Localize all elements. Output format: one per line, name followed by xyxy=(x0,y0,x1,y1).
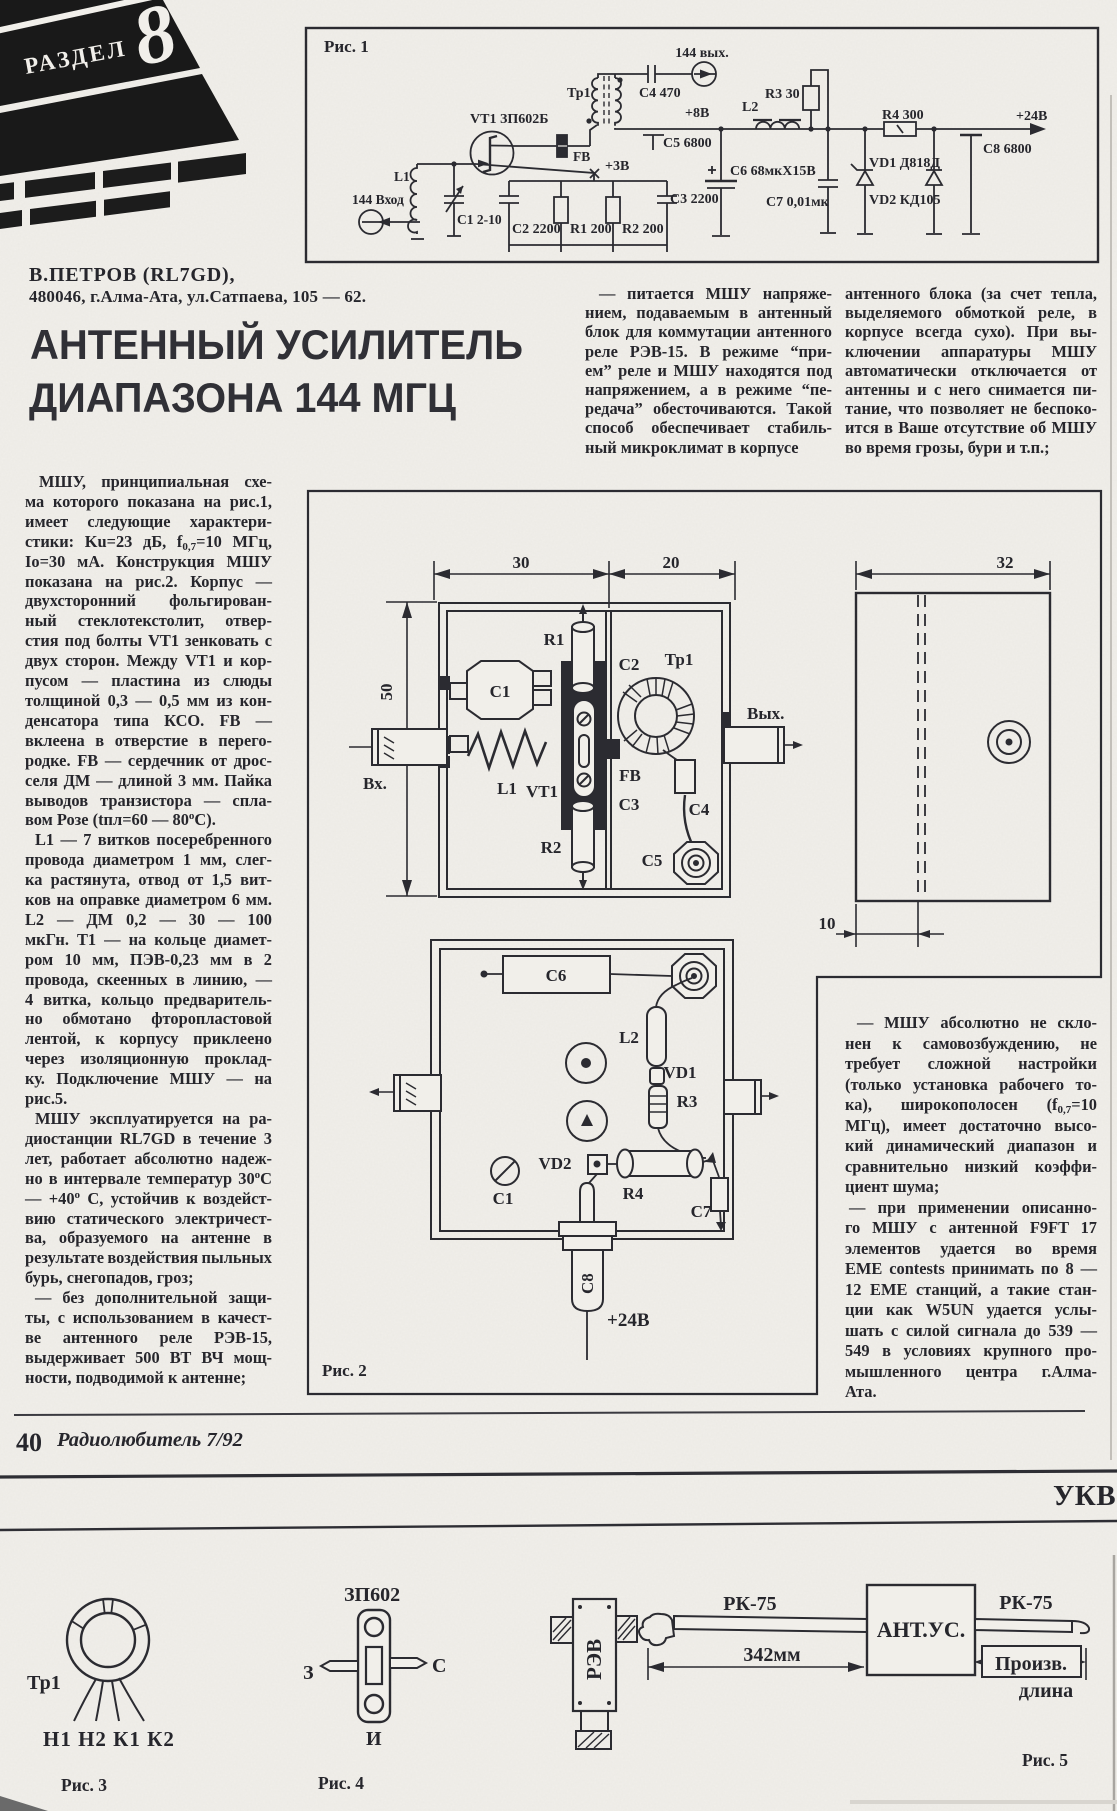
svg-text:С6 68мкХ15В: С6 68мкХ15В xyxy=(730,164,816,179)
svg-text:С3 2200: С3 2200 xyxy=(670,192,719,207)
svg-text:144 вых.: 144 вых. xyxy=(675,46,729,61)
svg-text:С6: С6 xyxy=(546,966,567,985)
svg-text:С8: С8 xyxy=(578,1273,597,1294)
svg-text:VD2: VD2 xyxy=(538,1154,571,1173)
svg-text:VT1 ЗП602Б: VT1 ЗП602Б xyxy=(470,112,548,127)
svg-text:32: 32 xyxy=(997,553,1014,572)
svg-text:Тр1: Тр1 xyxy=(665,650,694,669)
svg-text:С1: С1 xyxy=(490,682,511,701)
svg-text:С7: С7 xyxy=(691,1202,712,1221)
svg-text:30: 30 xyxy=(513,553,530,572)
svg-text:Н1 Н2 К1 К2: Н1 Н2 К1 К2 xyxy=(43,1727,175,1751)
svg-text:10: 10 xyxy=(819,914,836,933)
svg-text:+24В: +24В xyxy=(1016,109,1047,124)
svg-text:РЭВ: РЭВ xyxy=(582,1639,606,1680)
svg-text:R4: R4 xyxy=(623,1184,644,1203)
svg-text:Рис. 4: Рис. 4 xyxy=(318,1773,364,1793)
svg-text:R4 300: R4 300 xyxy=(882,108,924,123)
svg-text:50: 50 xyxy=(377,684,396,701)
svg-text:+3В: +3В xyxy=(605,159,629,174)
svg-text:VT1: VT1 xyxy=(526,782,558,801)
svg-text:L1: L1 xyxy=(394,169,410,184)
svg-text:С5 6800: С5 6800 xyxy=(663,136,712,151)
svg-text:РК-75: РК-75 xyxy=(723,1593,776,1615)
svg-text:FB: FB xyxy=(619,766,641,785)
svg-text:АНТ.УС.: АНТ.УС. xyxy=(877,1617,966,1642)
svg-text:FB: FB xyxy=(573,149,590,164)
svg-text:342мм: 342мм xyxy=(743,1644,800,1666)
svg-text:R1 200: R1 200 xyxy=(570,222,612,237)
svg-text:R2 200: R2 200 xyxy=(622,222,664,237)
svg-text:R1: R1 xyxy=(544,630,565,649)
svg-text:VD1: VD1 xyxy=(663,1063,696,1082)
svg-text:С5: С5 xyxy=(642,851,663,870)
svg-text:Вых.: Вых. xyxy=(747,704,784,723)
svg-text:З: З xyxy=(303,1662,314,1684)
svg-text:R3 30: R3 30 xyxy=(765,87,800,102)
svg-text:L2: L2 xyxy=(619,1028,639,1047)
svg-text:Тр1: Тр1 xyxy=(27,1672,61,1694)
svg-text:L2: L2 xyxy=(742,100,758,115)
svg-text:С2: С2 xyxy=(619,655,640,674)
svg-text:С1: С1 xyxy=(493,1189,514,1208)
svg-text:+8В: +8В xyxy=(685,106,709,121)
svg-text:С2 2200: С2 2200 xyxy=(512,222,561,237)
svg-text:С4: С4 xyxy=(689,800,710,819)
svg-text:С3: С3 xyxy=(619,795,640,814)
svg-text:R3: R3 xyxy=(677,1092,698,1111)
svg-text:Рис. 5: Рис. 5 xyxy=(1022,1750,1068,1770)
svg-text:С1 2-10: С1 2-10 xyxy=(457,212,502,227)
svg-text:И: И xyxy=(366,1728,382,1750)
svg-text:Рис. 2: Рис. 2 xyxy=(322,1361,367,1380)
svg-text:VD2 КД105: VD2 КД105 xyxy=(869,193,941,208)
svg-text:Рис. 1: Рис. 1 xyxy=(324,37,369,56)
svg-text:VD1 Д818Д: VD1 Д818Д xyxy=(869,156,940,171)
svg-text:Вх.: Вх. xyxy=(363,774,387,793)
svg-text:С7 0,01мк: С7 0,01мк xyxy=(766,195,830,210)
svg-text:+24В: +24В xyxy=(607,1310,650,1331)
svg-text:20: 20 xyxy=(663,553,680,572)
svg-text:ЗП602: ЗП602 xyxy=(344,1584,400,1606)
svg-text:L1: L1 xyxy=(497,779,517,798)
svg-text:Рис. 3: Рис. 3 xyxy=(61,1775,107,1795)
svg-text:144 Вход: 144 Вход xyxy=(352,192,404,207)
svg-text:длина: длина xyxy=(1019,1680,1073,1702)
svg-text:С8 6800: С8 6800 xyxy=(983,142,1032,157)
svg-text:С4 470: С4 470 xyxy=(639,86,681,101)
svg-text:R2: R2 xyxy=(541,838,562,857)
svg-text:Тр1: Тр1 xyxy=(567,86,591,101)
svg-text:РК-75: РК-75 xyxy=(999,1592,1052,1614)
svg-text:С: С xyxy=(432,1655,446,1677)
svg-text:Произв.: Произв. xyxy=(995,1653,1067,1675)
